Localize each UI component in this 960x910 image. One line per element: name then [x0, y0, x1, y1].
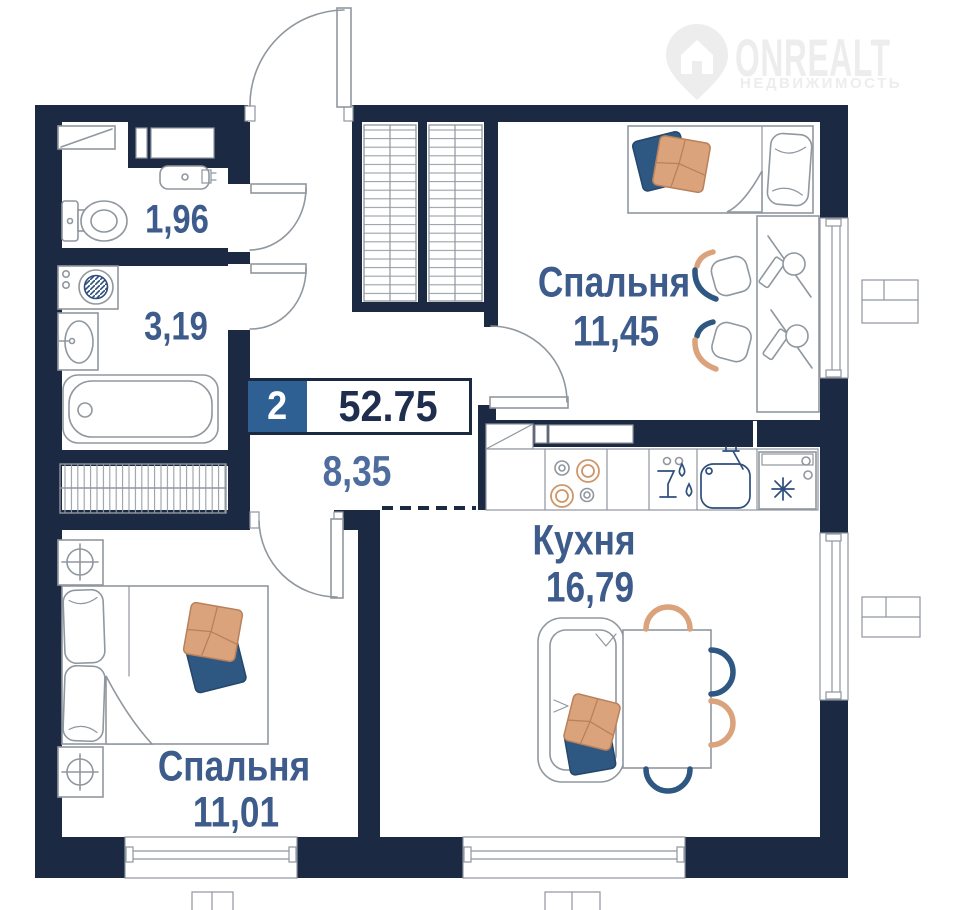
dining-chairs-icon [646, 607, 733, 791]
nightstand-lamp-icon [58, 540, 103, 797]
fridge-snowflake-icon [759, 452, 816, 509]
wc-area: 1,96 [145, 198, 209, 243]
bathtub-icon [63, 375, 218, 443]
bath-washbasin-icon [58, 313, 98, 370]
mirror-shelf-icon [58, 126, 115, 149]
dishwasher-icon [658, 458, 692, 498]
bathroom-door [250, 264, 306, 329]
desk-chairs-icon [695, 252, 754, 369]
wall-kitchen-north [478, 420, 820, 447]
vent-marker-right-bottom [862, 597, 920, 637]
wall-wc-east-mid [228, 252, 250, 264]
toilet-icon [62, 201, 127, 241]
vent-marker-right-top [862, 280, 918, 323]
wall-wardrobe-left [352, 122, 362, 312]
wall-wardrobe-mid [418, 122, 427, 312]
kitchen-area: 16,79 [546, 564, 634, 613]
vent-shaft-wc [128, 122, 232, 168]
sofa-icon [538, 618, 624, 782]
hallway-area: 8,35 [323, 448, 392, 497]
wall-outer-top-left [35, 105, 248, 122]
bedroom-bottom-door [250, 512, 343, 598]
double-bed-icon [62, 586, 268, 744]
total-area-value: 52.75 [338, 382, 437, 432]
total-area-badge: 52.75 [307, 381, 469, 432]
bedroom-bottom-area: 11,01 [193, 789, 279, 838]
rooms-count-value: 2 [267, 384, 287, 429]
washing-machine-icon [58, 266, 118, 309]
wc-washbasin-icon [160, 166, 216, 189]
floor-plan: Спальня 11,45 Кухня 16,79 Спальня 11,01 … [0, 0, 960, 910]
wall-wc-east-upper [228, 122, 250, 184]
closet-rail-icon [60, 464, 226, 513]
entrance-door [245, 8, 353, 121]
kitchen-label: Кухня [532, 517, 635, 566]
bathroom-area: 3,19 [144, 305, 208, 350]
wall-wc-bath-divider [62, 248, 228, 266]
single-bed-icon [628, 126, 813, 213]
wall-outer-bottom [35, 837, 848, 878]
bedroom-top-door [490, 326, 568, 408]
kitchen-sink-icon [701, 447, 750, 508]
logo: ONREALT НЕДВИЖИМОСТЬ [650, 18, 960, 108]
dining-table-icon [623, 630, 711, 768]
wall-outer-right [820, 105, 848, 878]
vent-marker-bottom-left [192, 892, 233, 910]
map-pin-house-icon [658, 22, 736, 104]
wc-door [250, 184, 306, 250]
wall-wardrobe-right [484, 122, 498, 327]
wall-outer-left [35, 105, 62, 878]
apartment-info-badge: 2 52.75 [245, 378, 472, 435]
wall-wardrobe-bottom [352, 302, 498, 312]
bedroom-top-area: 11,45 [573, 308, 659, 357]
desk-icon [757, 216, 819, 412]
bedroom-top-label: Спальня [538, 259, 690, 308]
vent-marker-bottom-right [545, 892, 600, 910]
wall-bedroom-bottom-north-left [62, 510, 250, 530]
logo-subtitle: НЕДВИЖИМОСТЬ [740, 75, 902, 92]
rooms-count-badge: 2 [248, 381, 307, 432]
wall-bedroom-bottom-east [358, 510, 380, 837]
wall-bath-south [62, 450, 228, 466]
kitchen-counter [486, 449, 818, 510]
stove-icon [551, 460, 599, 507]
bedroom-bottom-label: Спальня [158, 743, 310, 792]
